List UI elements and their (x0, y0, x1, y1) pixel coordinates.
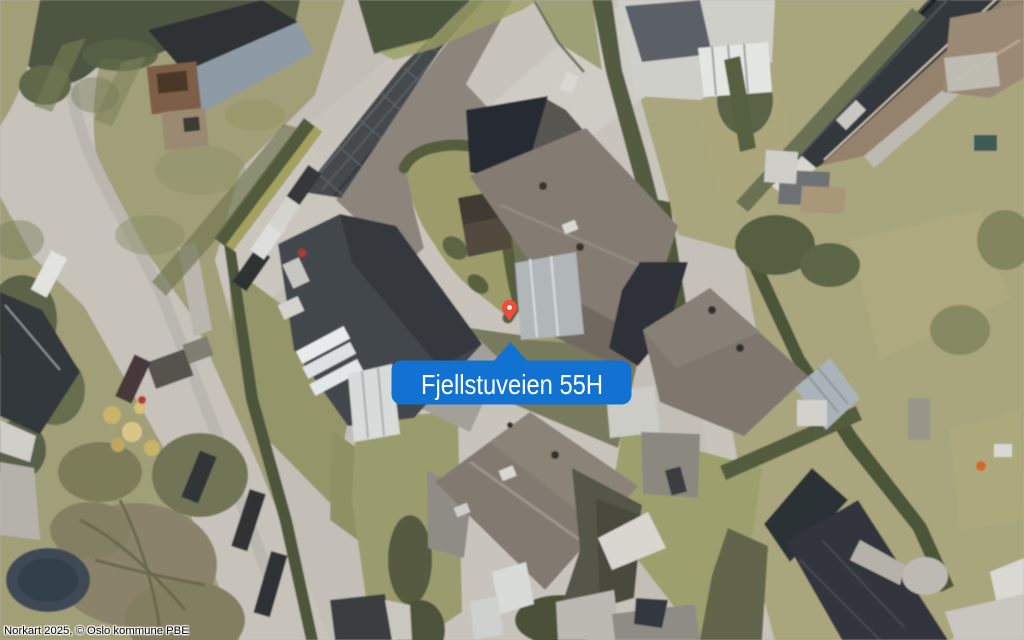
svg-text:Fjellstuveien 55H: Fjellstuveien 55H (421, 369, 603, 400)
